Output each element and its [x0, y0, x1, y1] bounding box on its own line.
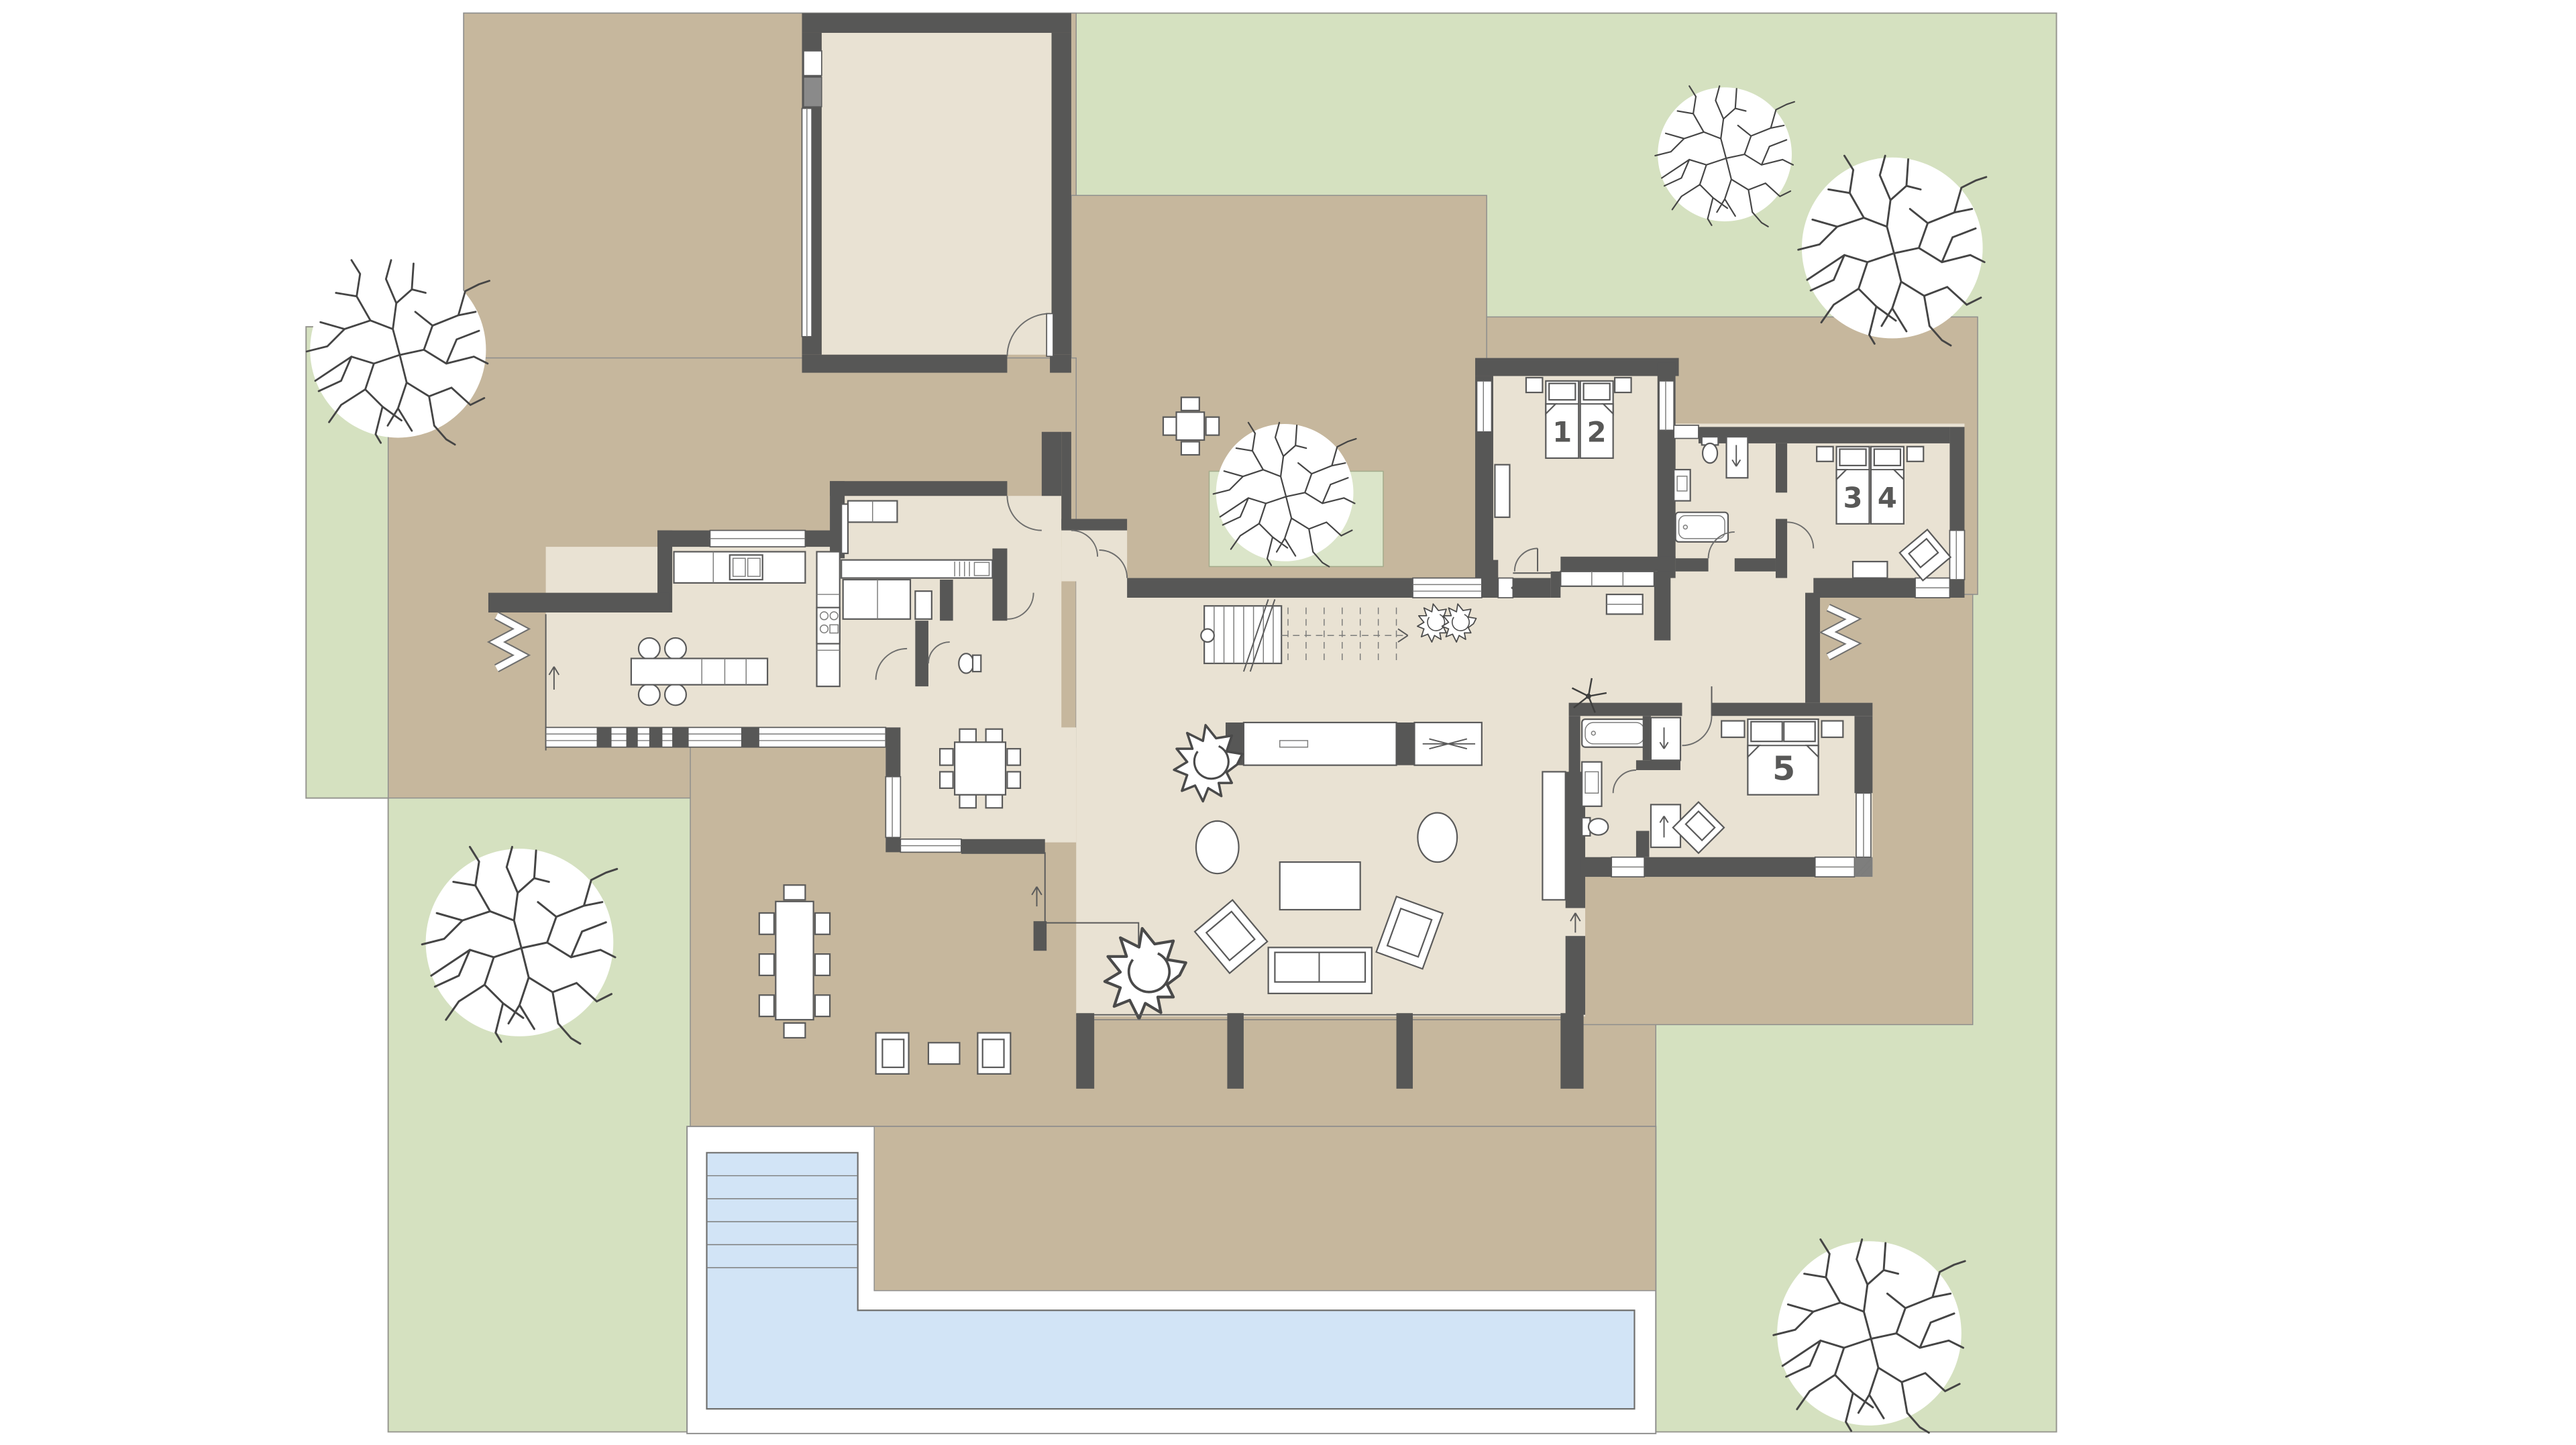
garage-floor — [822, 33, 1052, 355]
corner-column — [1854, 857, 1872, 877]
wardrobe — [1495, 465, 1509, 517]
coffee-table — [1280, 862, 1360, 910]
hall-closets — [1560, 572, 1654, 586]
pouf — [1417, 813, 1457, 862]
pool-area — [687, 1126, 1656, 1434]
kitchen-sink — [730, 555, 763, 580]
floor-plan-page: 1 2 — [0, 0, 2576, 1445]
toilet — [1702, 437, 1718, 463]
dresser — [1853, 561, 1887, 578]
living-north-window — [1413, 578, 1482, 598]
vanity — [1582, 762, 1601, 806]
pouf — [1196, 821, 1239, 873]
vanity — [1674, 470, 1690, 501]
cooktop — [817, 608, 840, 644]
terrace-over-deck — [874, 1126, 1656, 1291]
room-number-2: 2 — [1587, 415, 1607, 448]
kitchen-units — [843, 580, 910, 619]
wc-toilet — [959, 653, 981, 673]
bathtub — [1676, 513, 1728, 542]
room-number-1: 1 — [1552, 415, 1572, 448]
site-plan: 1 2 — [0, 0, 2576, 1445]
sofa — [1269, 947, 1372, 994]
closet — [1651, 718, 1680, 761]
sideboard — [1226, 722, 1482, 765]
kitchen-south-windows — [546, 727, 886, 747]
bathtub — [1582, 719, 1648, 747]
built-in-shelf — [1542, 771, 1565, 900]
room-number-3: 3 — [1843, 481, 1863, 514]
closet — [1727, 437, 1748, 478]
room-number-4: 4 — [1878, 481, 1897, 514]
fridge — [915, 591, 931, 619]
garage-window — [804, 51, 822, 76]
room-number-5: 5 — [1772, 750, 1795, 788]
toilet — [1582, 818, 1608, 836]
